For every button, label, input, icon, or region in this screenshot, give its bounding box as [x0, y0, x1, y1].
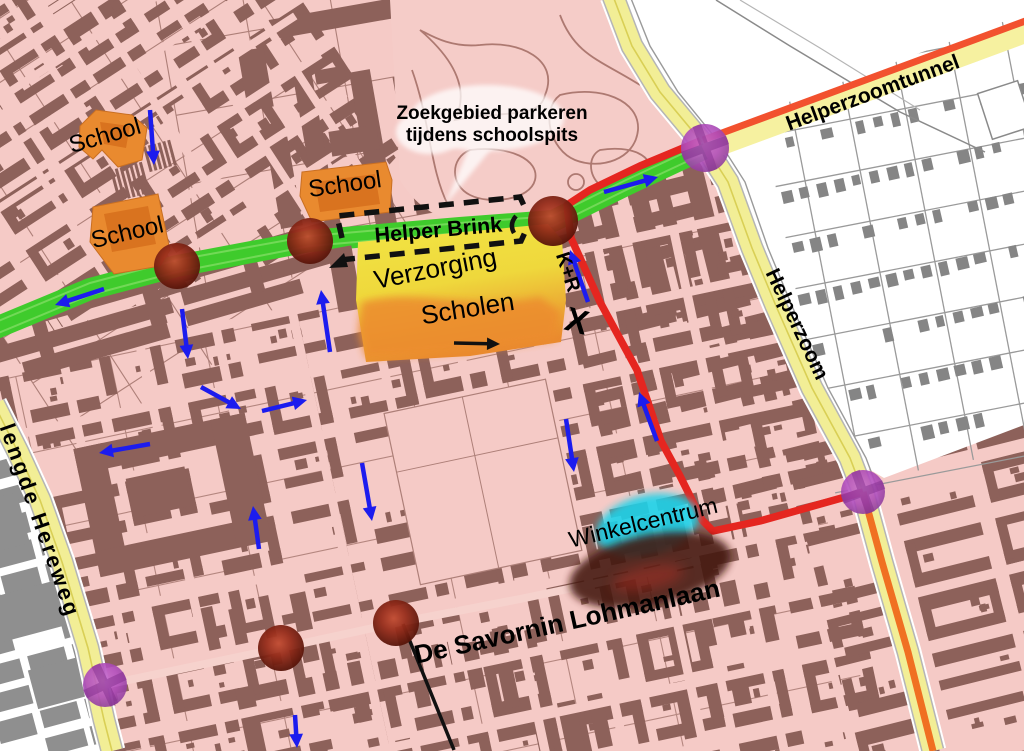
- svg-text:tijdens schoolspits: tijdens schoolspits: [406, 125, 578, 146]
- svg-text:Zoekgebied parkeren: Zoekgebied parkeren: [396, 103, 587, 124]
